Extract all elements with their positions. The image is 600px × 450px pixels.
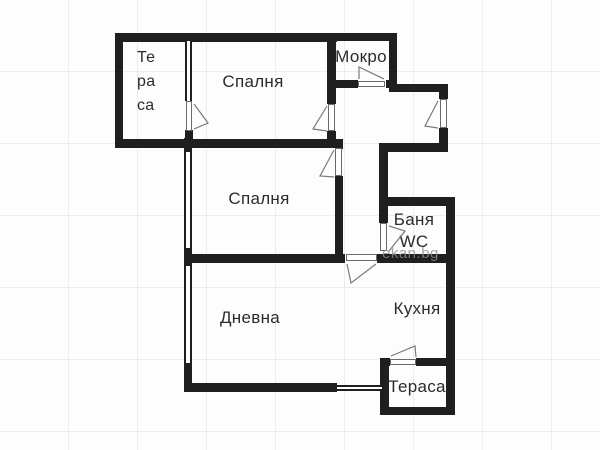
door-kitchen <box>346 254 377 261</box>
door-bedroom2 <box>335 148 342 176</box>
door-swing-mokro <box>359 67 384 79</box>
door-swing-entrance <box>425 101 438 128</box>
wall-segment-bedroom1-bottom <box>115 139 343 148</box>
wall-segment-west-node-bottom <box>184 363 192 392</box>
door-swing-bedroom1 <box>313 106 327 131</box>
window-bedroom2-west <box>184 152 192 248</box>
wall-segment-living-bottom <box>184 383 337 392</box>
door-mokro <box>358 81 385 87</box>
wall-segment-bath-top <box>379 197 455 206</box>
window-terrace-divider <box>185 41 192 101</box>
room-label-bedroom-1: Спалня <box>222 71 283 93</box>
wall-segment-top <box>115 33 337 42</box>
floor-plan: Те ра са Спалня Мокро Спалня Баня WC Дне… <box>0 0 600 450</box>
room-label-terrace-bottom: Тераса <box>388 376 446 398</box>
wall-segment-bedroom2-east <box>335 176 343 263</box>
window-living-west <box>184 266 192 363</box>
room-label-mokro: Мокро <box>335 46 387 68</box>
door-entrance <box>440 99 447 128</box>
door-swing-kitchen-terrace <box>391 346 416 357</box>
room-label-living-room: Дневна <box>220 307 280 329</box>
door-swing-kitchen <box>347 264 376 283</box>
room-label-kitchen: Кухня <box>394 298 441 320</box>
window-living-south <box>337 385 382 391</box>
door-swing-terrace-bedroom1 <box>194 104 208 129</box>
wall-segment-bedroom1-east-top <box>327 33 336 104</box>
watermark: ekan.bg <box>382 245 439 262</box>
door-swing-bedroom2 <box>320 150 334 177</box>
wall-segment-living-top <box>184 254 345 263</box>
door-kitchen-terrace <box>390 359 416 365</box>
wall-segment-east-outer <box>446 197 455 415</box>
room-label-terrace-top: Те ра са <box>137 46 155 118</box>
wall-segment-bath-west <box>379 143 388 223</box>
wall-segment-corridor-bottom <box>379 143 448 152</box>
door-bedroom1 <box>328 104 335 131</box>
wall-segment-entrance-bottom <box>439 128 448 152</box>
wall-segment-terrace-west <box>115 33 123 148</box>
wall-segment-west-node-top <box>184 138 192 152</box>
wall-segment-entrance-top <box>439 84 448 99</box>
room-label-bedroom-2: Спалня <box>228 188 289 210</box>
wall-segment-mokro-east <box>389 33 397 88</box>
wall-segment-terrace2-bottom <box>380 407 455 415</box>
door-terrace-bedroom1 <box>186 101 192 131</box>
wall-segment-mokro-top <box>327 33 397 41</box>
wall-segment-west-node-mid <box>184 248 192 266</box>
